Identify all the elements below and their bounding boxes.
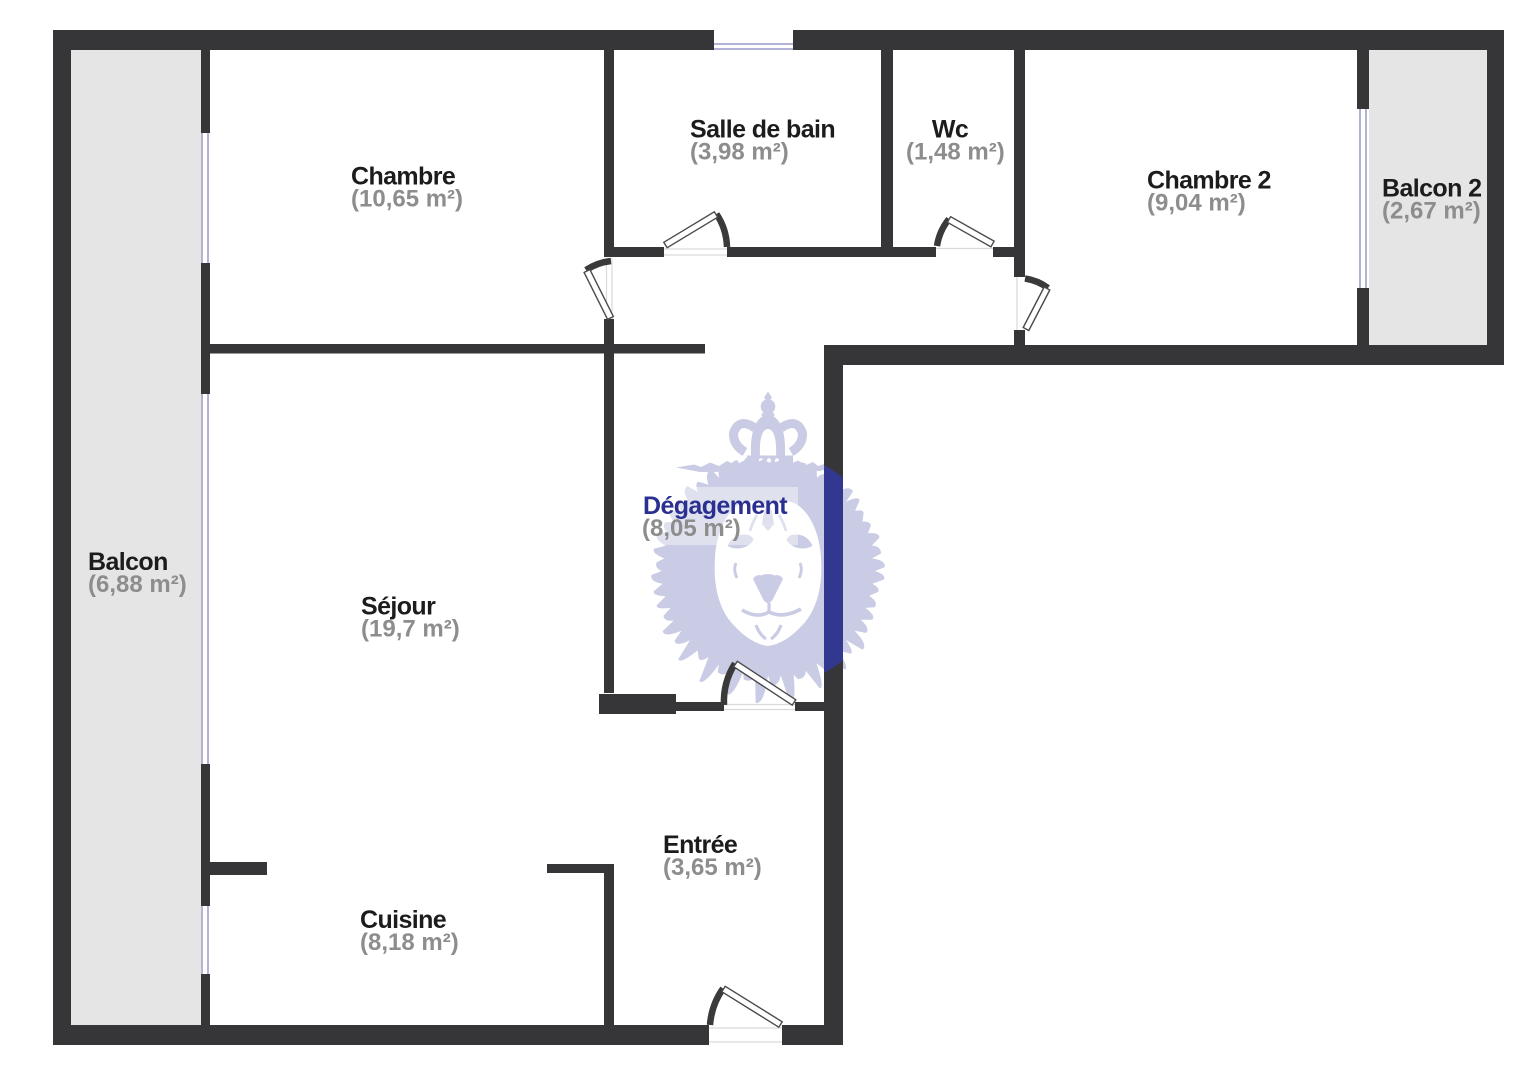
svg-text:(3,65 m²): (3,65 m²) xyxy=(663,854,762,881)
svg-text:(1,48 m²): (1,48 m²) xyxy=(906,139,1005,166)
svg-text:(3,98 m²): (3,98 m²) xyxy=(690,139,789,166)
svg-text:(10,65 m²): (10,65 m²) xyxy=(351,186,463,213)
svg-text:(9,04 m²): (9,04 m²) xyxy=(1147,190,1246,217)
svg-text:(8,18 m²): (8,18 m²) xyxy=(360,929,459,956)
svg-text:(2,67 m²): (2,67 m²) xyxy=(1382,198,1481,225)
svg-text:(6,88 m²): (6,88 m²) xyxy=(88,571,187,598)
svg-text:(19,7 m²): (19,7 m²) xyxy=(361,616,460,643)
svg-text:(8,05 m²): (8,05 m²) xyxy=(642,515,741,542)
